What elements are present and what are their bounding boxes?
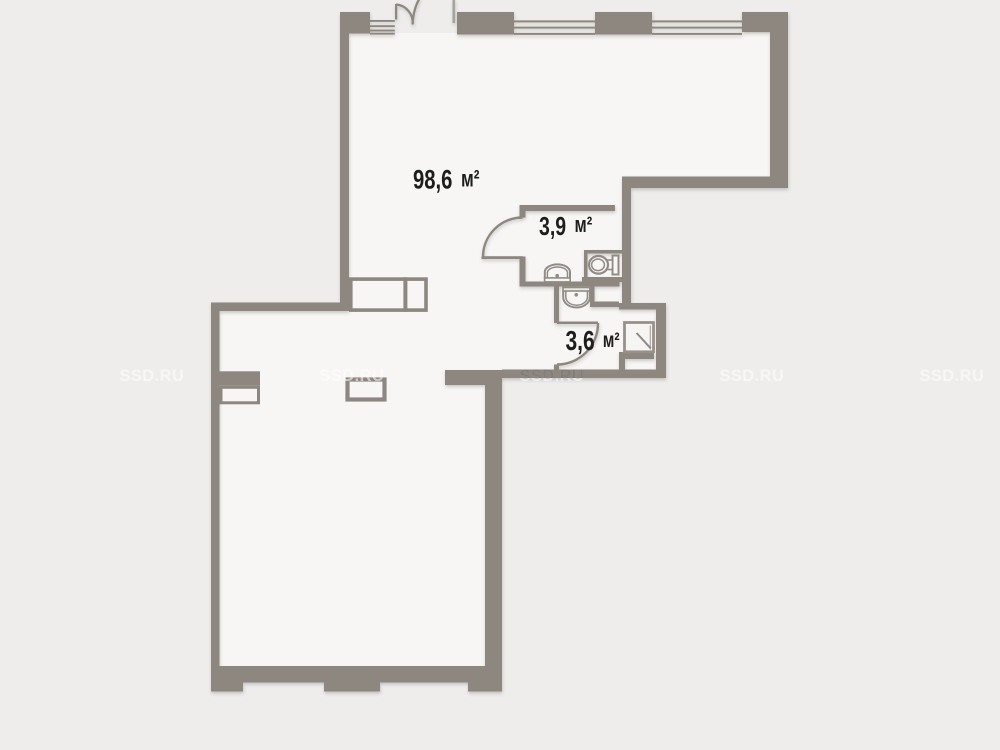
svg-text:SSD.RU: SSD.RU xyxy=(320,367,385,385)
svg-text:3,9 м²: 3,9 м² xyxy=(539,211,593,240)
svg-text:SSD.RU: SSD.RU xyxy=(720,367,785,385)
svg-text:98,6 м²: 98,6 м² xyxy=(413,165,480,196)
svg-text:SSD.RU: SSD.RU xyxy=(120,367,185,385)
svg-text:SSD.RU: SSD.RU xyxy=(920,367,985,385)
